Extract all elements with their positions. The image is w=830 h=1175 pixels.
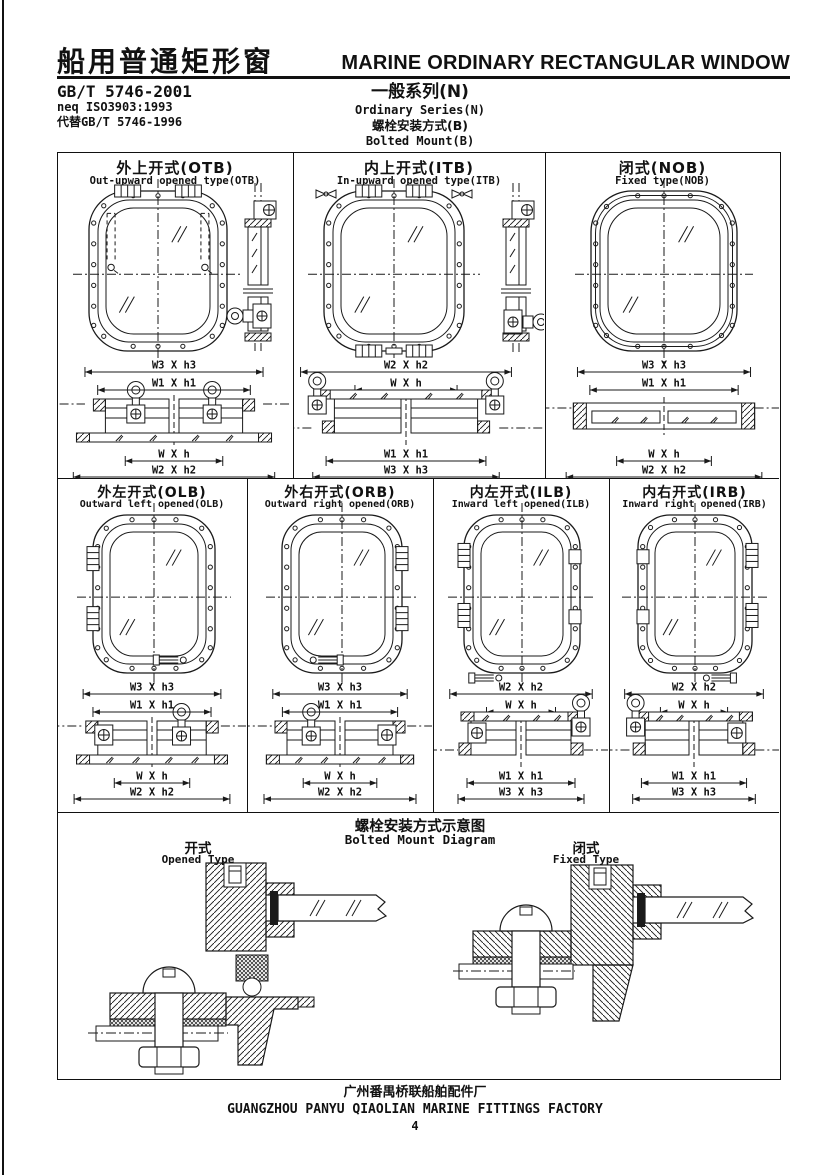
page-number: 4: [0, 1118, 830, 1134]
svg-text:W X h: W X h: [648, 449, 680, 461]
svg-text:W1 X h1: W1 X h1: [672, 771, 716, 783]
standard-equivalent: neq ISO3903:1993: [57, 100, 173, 114]
cell-otb: 外上开式(OTB) Out-upward opened type(OTB) W3…: [58, 153, 292, 479]
scan-edge-line: [2, 0, 4, 1175]
svg-text:W1 X h1: W1 X h1: [130, 700, 174, 712]
footer: 广州番禺桥联船舶配件厂 GUANGZHOU PANYU QIAOLIAN MAR…: [0, 1084, 830, 1134]
series-block: 一般系列(N) Ordinary Series(N) 螺栓安装方式(B) Bol…: [260, 82, 580, 148]
svg-text:W2 X h2: W2 X h2: [499, 682, 543, 694]
itb-window-drawing: W2 X h2W X hW1 X h1W3 X h3: [294, 153, 544, 479]
svg-text:W X h: W X h: [136, 771, 168, 783]
drawing-grid: 外上开式(OTB) Out-upward opened type(OTB) W3…: [57, 152, 781, 1080]
cell-nob: 闭式(NOB) Fixed type(NOB) W3 X h3W1 X h1W …: [546, 153, 779, 479]
svg-text:W3 X h3: W3 X h3: [384, 465, 428, 477]
svg-text:W3 X h3: W3 X h3: [130, 682, 174, 694]
svg-text:W X h: W X h: [390, 378, 422, 390]
svg-text:W3 X h3: W3 X h3: [318, 682, 362, 694]
factory-name-en: GUANGZHOU PANYU QIAOLIAN MARINE FITTINGS…: [0, 1101, 830, 1118]
svg-text:W X h: W X h: [324, 771, 356, 783]
svg-text:W X h: W X h: [505, 700, 537, 712]
page-title-en: MARINE ORDINARY RECTANGULAR WINDOW: [341, 52, 790, 75]
cell-itb: 内上开式(ITB) In-upward opened type(ITB) W2 …: [294, 153, 544, 479]
catalog-page: 船用普通矩形窗 MARINE ORDINARY RECTANGULAR WIND…: [0, 0, 830, 1175]
svg-text:W2 X h2: W2 X h2: [130, 787, 174, 799]
olb-window-drawing: W3 X h3W1 X h1W X hW2 X h2: [58, 479, 246, 813]
svg-text:W1 X h1: W1 X h1: [152, 378, 196, 390]
svg-text:W3 X h3: W3 X h3: [672, 787, 716, 799]
page-title-cn: 船用普通矩形窗: [57, 40, 274, 80]
svg-text:W2 X h2: W2 X h2: [672, 682, 716, 694]
svg-text:W2 X h2: W2 X h2: [384, 360, 428, 372]
svg-text:W1 X h1: W1 X h1: [642, 378, 686, 390]
svg-text:W2 X h2: W2 X h2: [318, 787, 362, 799]
mount-label-cn: 螺栓安装方式(B): [260, 118, 580, 134]
svg-text:W1 X h1: W1 X h1: [499, 771, 543, 783]
cell-ilb: 内左开式(ILB) Inward left opened(ILB) W2 X h…: [434, 479, 608, 813]
opened-type-section-drawing: [88, 859, 398, 1077]
standard-code: GB/T 5746-2001: [57, 82, 192, 101]
orb-window-drawing: W3 X h3W1 X h1W X hW2 X h2: [248, 479, 432, 813]
otb-window-drawing: W3 X h3W1 X h1W X hW2 X h2: [58, 153, 292, 479]
nob-window-drawing: W3 X h3W1 X h1W X hW2 X h2: [546, 153, 779, 479]
svg-text:W3 X h3: W3 X h3: [152, 360, 196, 372]
series-label-en: Ordinary Series(N): [260, 102, 580, 118]
svg-text:W1 X h1: W1 X h1: [384, 449, 428, 461]
svg-text:W2 X h2: W2 X h2: [642, 465, 686, 477]
cell-orb: 外右开式(ORB) Outward right opened(ORB) W3 X…: [248, 479, 432, 813]
ilb-window-drawing: W2 X h2W X hW1 X h1W3 X h3: [434, 479, 608, 813]
mount-label-en: Bolted Mount(B): [260, 134, 580, 148]
svg-text:W X h: W X h: [158, 449, 190, 461]
svg-text:W3 X h3: W3 X h3: [642, 360, 686, 372]
svg-text:W3 X h3: W3 X h3: [499, 787, 543, 799]
cell-olb: 外左开式(OLB) Outward left opened(OLB) W3 X …: [58, 479, 246, 813]
svg-text:W1 X h1: W1 X h1: [318, 700, 362, 712]
irb-window-drawing: W2 X h2W X hW1 X h1W3 X h3: [610, 479, 779, 813]
factory-name-cn: 广州番禺桥联船舶配件厂: [0, 1084, 830, 1101]
series-label-cn: 一般系列(N): [260, 82, 580, 102]
standard-replaces: 代替GB/T 5746-1996: [57, 113, 182, 130]
fixed-type-section-drawing: [453, 859, 763, 1077]
svg-text:W X h: W X h: [678, 700, 710, 712]
header-rule: [57, 76, 790, 79]
svg-text:W2 X h2: W2 X h2: [152, 465, 196, 477]
cell-irb: 内右开式(IRB) Inward right opened(IRB) W2 X …: [610, 479, 779, 813]
